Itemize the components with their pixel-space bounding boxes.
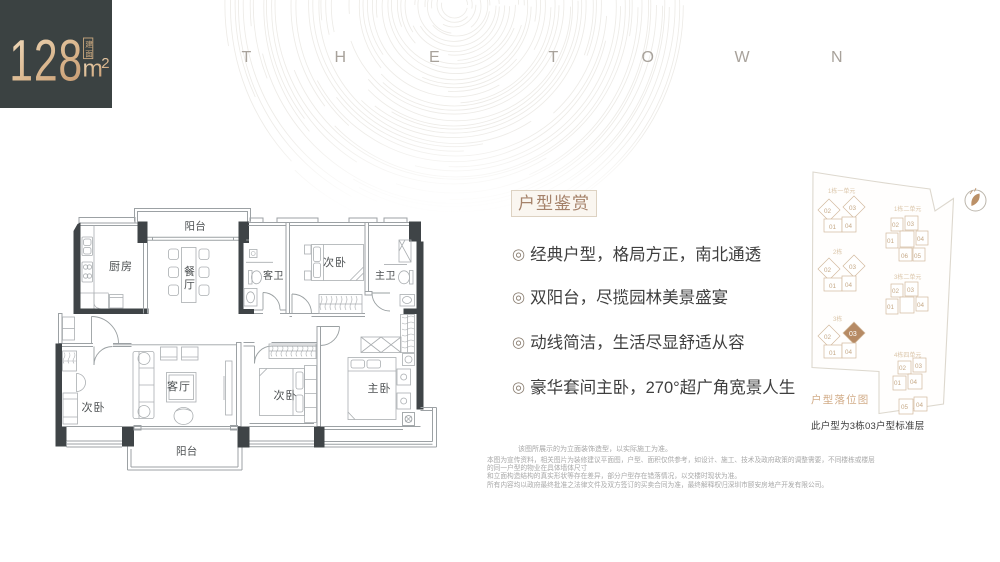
svg-text:1栋一单元: 1栋一单元 [828, 187, 855, 195]
svg-text:03: 03 [849, 205, 857, 212]
svg-text:04: 04 [910, 379, 918, 386]
svg-text:02: 02 [824, 267, 832, 274]
svg-text:3栋二单元: 3栋二单元 [894, 273, 921, 281]
svg-text:04: 04 [917, 236, 925, 243]
svg-text:2: 2 [101, 55, 109, 72]
svg-text:128: 128 [9, 28, 83, 93]
svg-text:厅: 厅 [184, 279, 195, 291]
svg-text:餐: 餐 [184, 264, 195, 278]
svg-text:04: 04 [845, 349, 853, 356]
svg-text:04: 04 [845, 282, 853, 289]
svg-text:次卧: 次卧 [82, 400, 106, 414]
svg-text:05: 05 [914, 253, 922, 260]
svg-text:01: 01 [829, 224, 837, 231]
svg-text:01: 01 [887, 304, 895, 311]
svg-text:2栋: 2栋 [833, 248, 842, 256]
svg-text:客厅: 客厅 [167, 379, 191, 393]
svg-text:04: 04 [917, 302, 925, 309]
svg-text:05: 05 [901, 404, 909, 411]
svg-text:建: 建 [85, 39, 93, 49]
svg-text:01: 01 [829, 350, 837, 357]
svg-text:03: 03 [907, 287, 915, 294]
svg-text:阳台: 阳台 [176, 445, 198, 458]
svg-text:02: 02 [892, 288, 900, 295]
svg-text:阳台: 阳台 [185, 220, 207, 233]
svg-text:主卧: 主卧 [368, 382, 392, 395]
svg-text:主卫: 主卫 [375, 270, 396, 282]
svg-text:次卧: 次卧 [274, 388, 298, 402]
svg-text:01: 01 [887, 238, 895, 245]
svg-text:面: 面 [85, 50, 93, 59]
svg-text:03: 03 [915, 363, 923, 370]
svg-text:02: 02 [824, 208, 832, 215]
svg-text:客卫: 客卫 [263, 269, 284, 282]
svg-text:01: 01 [894, 380, 902, 387]
svg-text:06: 06 [901, 253, 909, 260]
svg-text:m: m [83, 56, 103, 83]
svg-text:01: 01 [829, 283, 837, 290]
svg-text:02: 02 [892, 222, 900, 229]
svg-text:03: 03 [849, 331, 857, 338]
svg-text:02: 02 [824, 334, 832, 341]
svg-text:02: 02 [899, 365, 907, 372]
svg-text:03: 03 [849, 264, 857, 271]
svg-text:1栋二单元: 1栋二单元 [894, 205, 921, 213]
svg-text:次卧: 次卧 [323, 255, 347, 269]
svg-text:04: 04 [845, 223, 853, 230]
svg-text:03: 03 [907, 221, 915, 228]
svg-text:04: 04 [916, 402, 924, 409]
svg-text:3栋: 3栋 [833, 315, 842, 323]
svg-text:厨房: 厨房 [109, 260, 133, 273]
